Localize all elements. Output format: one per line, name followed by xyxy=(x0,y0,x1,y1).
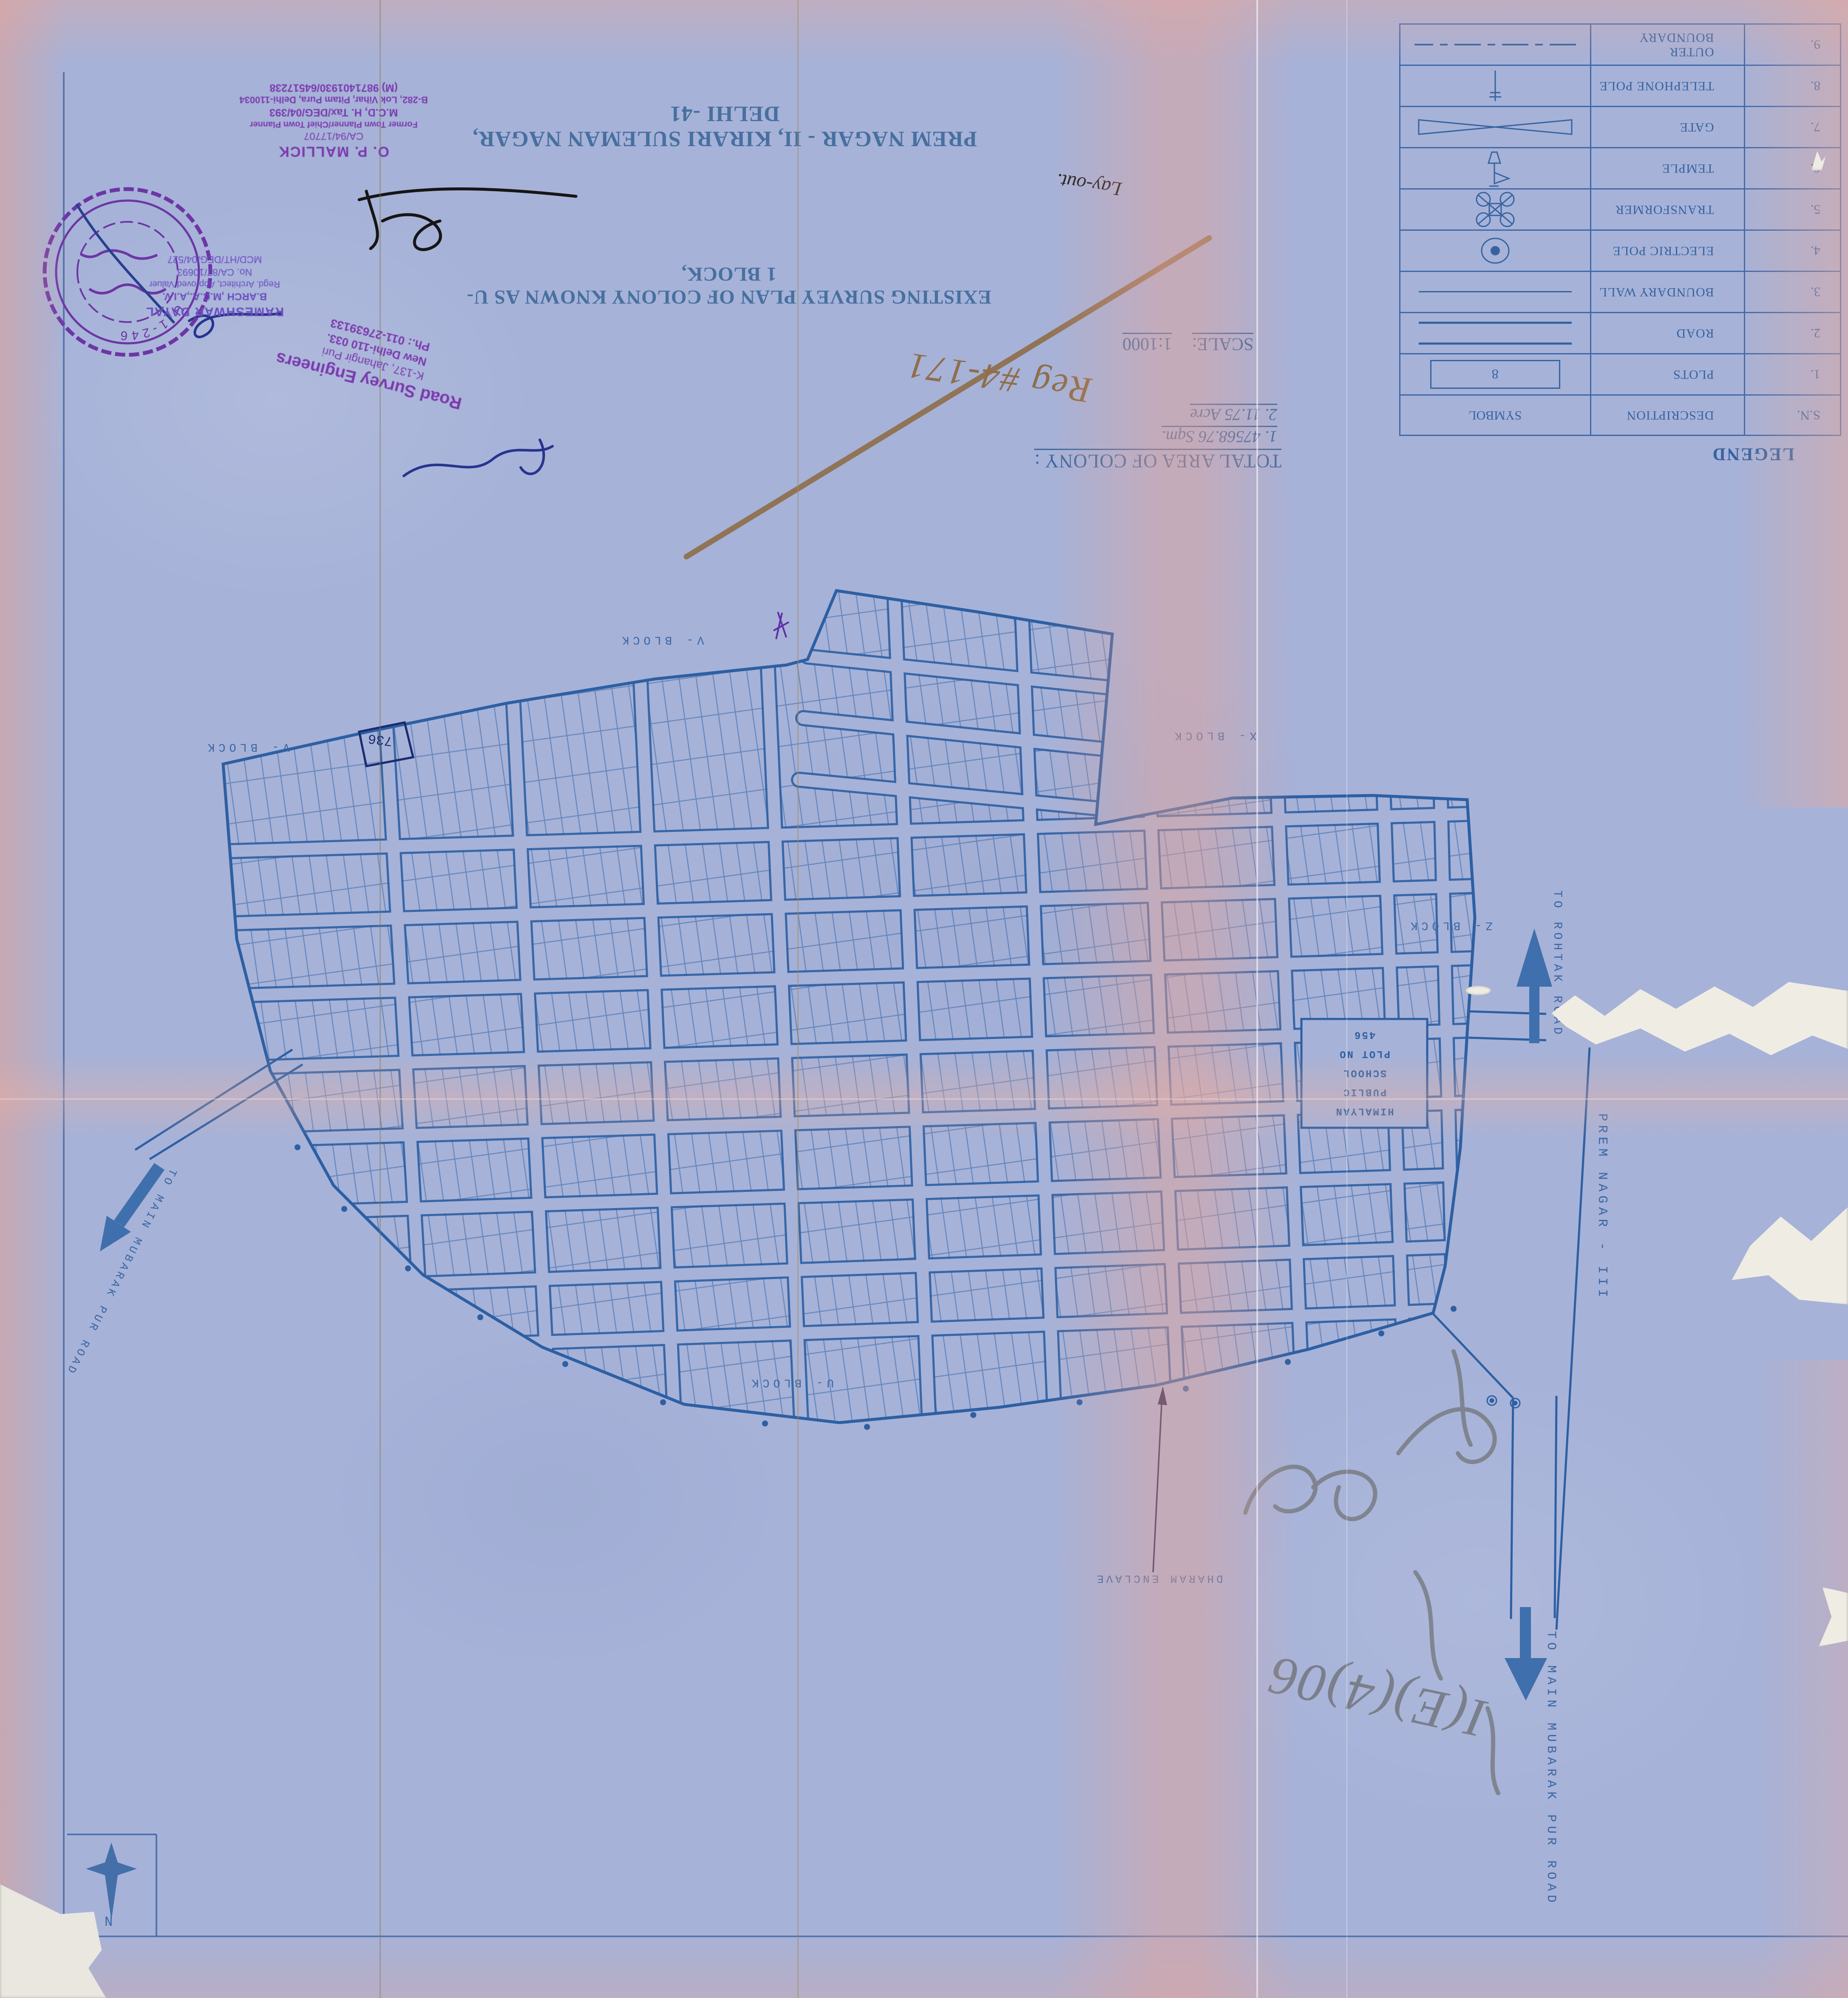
temple-symbol-icon xyxy=(1470,149,1521,188)
transformer-symbol-icon xyxy=(1465,190,1525,229)
legend-desc-road: ROAD xyxy=(1590,313,1744,353)
legend-desc-outer-boundary: OUTER BOUNDARY xyxy=(1590,25,1744,65)
legend-title: LEGEND xyxy=(1399,444,1794,464)
mallick-name: O. P. MALLICK xyxy=(232,142,436,161)
rameshwar-mcd: MCD/HT/DEG/04/527 xyxy=(125,253,304,266)
purple-ink-mark xyxy=(774,612,789,639)
legend-sn-1: 1. xyxy=(1744,354,1840,394)
school-l1: HIMALYAN xyxy=(1307,1101,1421,1121)
legend-sn-9: 9. xyxy=(1744,25,1840,65)
total-area-item-2: 2. 11.75 Acre xyxy=(1190,404,1277,424)
mubarak-right-label: TO MAIN MUBARAK PUR ROAD xyxy=(1544,1631,1558,1945)
rohtak-road-label: TO ROHTAK ROAD xyxy=(1550,890,1564,1052)
title-line-2: PREM NAGAR - II, KIRARI SULEMAN NAGAR, D… xyxy=(448,101,1001,151)
legend-sn-7: 7. xyxy=(1744,107,1840,147)
pole-double-circles xyxy=(1487,1396,1520,1408)
mallick-role: Former Town Planner/Chief Town Planner xyxy=(232,119,436,130)
legend-sn-2: 2. xyxy=(1744,313,1840,353)
legend-sn-4: 4. xyxy=(1744,231,1840,271)
school-l4: PLOT NO xyxy=(1307,1044,1421,1063)
legend-table: S.N. DESCRIPTION SYMBOL 1. PLOTS 8 2. RO… xyxy=(1399,23,1841,436)
dharam-enclave-label: DHARAM ENCLAVE xyxy=(1094,1572,1223,1585)
plot-parcels xyxy=(191,574,1509,1466)
school-l3: SCHOOL xyxy=(1307,1063,1421,1082)
plots-symbol-number: 8 xyxy=(1492,367,1499,382)
compass-n-label: N xyxy=(105,1914,113,1930)
school-l5: 456 xyxy=(1307,1025,1421,1044)
mallick-ca: CA/94/17707 xyxy=(232,130,436,142)
legend-sn-8: 8. xyxy=(1744,66,1840,106)
rameshwar-degree: B.ARCH ,M.C.A.,A.I.V. xyxy=(125,290,304,303)
scale-label: SCALE: xyxy=(1192,333,1254,354)
total-area-item-1: 1. 47568.76 Sqm. xyxy=(1162,426,1277,446)
mubarak-right-arrow xyxy=(1505,1607,1547,1701)
mallick-stamp: O. P. MALLICK CA/94/17707 Former Town Pl… xyxy=(232,81,436,161)
hand-plot-736-label: 736 xyxy=(367,730,394,749)
legend-desc-electric-pole: ELECTRIC POLE xyxy=(1590,231,1744,271)
total-area-heading: TOTAL AREA OF COLONY : xyxy=(1034,449,1281,472)
boundary-wall-symbol-icon xyxy=(1419,291,1572,293)
legend-sn-6: 6. xyxy=(1744,148,1840,188)
crease-horizontal-line xyxy=(0,1098,1848,1100)
v-block-top-label: V- BLOCK xyxy=(618,633,704,646)
black-signature xyxy=(359,189,576,250)
legend-desc-transformer: TRANSFORMER xyxy=(1590,190,1744,229)
legend-desc-gate: GATE xyxy=(1590,107,1744,147)
mallick-mobile: (M) 9871401930/64517238 xyxy=(232,81,436,94)
u-block-label: U- BLOCK xyxy=(748,1376,834,1389)
legend-desc-boundary-wall: BOUNDARY WALL xyxy=(1590,272,1744,312)
prem-nagar-iii-boundary-line xyxy=(1556,1047,1590,1630)
blue-signature-road-survey xyxy=(404,440,553,476)
scale-value: 1:1000 xyxy=(1122,333,1172,354)
rameshwar-title: Regd. Architect, Approved Valuer xyxy=(125,278,304,290)
z-block-label: Z- BLOCK xyxy=(1407,919,1493,931)
gate-symbol-icon xyxy=(1410,112,1580,142)
mallick-address: B-282, Lok Vihar, Pitam Pura, Delhi-1100… xyxy=(232,94,436,106)
electric-pole-symbol-icon xyxy=(1470,232,1521,270)
x-block-label: X- BLOCK xyxy=(1171,729,1257,741)
legend-desc-temple: TEMPLE xyxy=(1590,148,1744,188)
scanned-survey-plan-sheet: { "document": { "kind": "blueprint surve… xyxy=(0,0,1848,1998)
mallick-mcd: M.C.D, H. Tax/DEG/04/393 xyxy=(232,106,436,119)
legend-desc-telephone-pole: TELEPHONE POLE xyxy=(1590,66,1744,106)
rohtak-road-arrow xyxy=(1516,928,1552,1043)
outer-boundary-symbol-icon xyxy=(1410,40,1580,49)
v-block-left-label: V- BLOCK xyxy=(204,740,290,753)
scale-note: SCALE: 1:1000 xyxy=(1092,334,1284,354)
legend-desc-plots: PLOTS xyxy=(1590,354,1744,394)
legend-sn-5: 5. xyxy=(1744,190,1840,229)
plots-symbol-icon: 8 xyxy=(1430,360,1560,389)
legend: LEGEND S.N. DESCRIPTION SYMBOL 1. PLOTS … xyxy=(1399,23,1841,464)
paper-tear-sliver xyxy=(1465,986,1491,995)
legend-sn-3: 3. xyxy=(1744,272,1840,312)
legend-col-sn: S.N. xyxy=(1744,396,1840,435)
legend-col-sym: SYMBOL xyxy=(1400,408,1590,422)
prem-nagar-iii-label: PREM NAGAR - III xyxy=(1595,1113,1610,1322)
title-line-1: EXISTING SURVEY PLAN OF COLONY KNOWN AS … xyxy=(463,263,995,308)
rameshwar-ca: No. CA/87/10693 xyxy=(125,266,304,278)
telephone-pole-symbol-icon xyxy=(1478,66,1512,105)
road-symbol-icon xyxy=(1419,322,1572,345)
dharam-enclave-arrow xyxy=(1153,1386,1167,1572)
school-label: HIMALYAN PUBLIC SCHOOL PLOT NO 456 xyxy=(1307,1025,1421,1121)
legend-col-desc: DESCRIPTION xyxy=(1590,396,1744,435)
north-compass-icon xyxy=(86,1842,137,1921)
